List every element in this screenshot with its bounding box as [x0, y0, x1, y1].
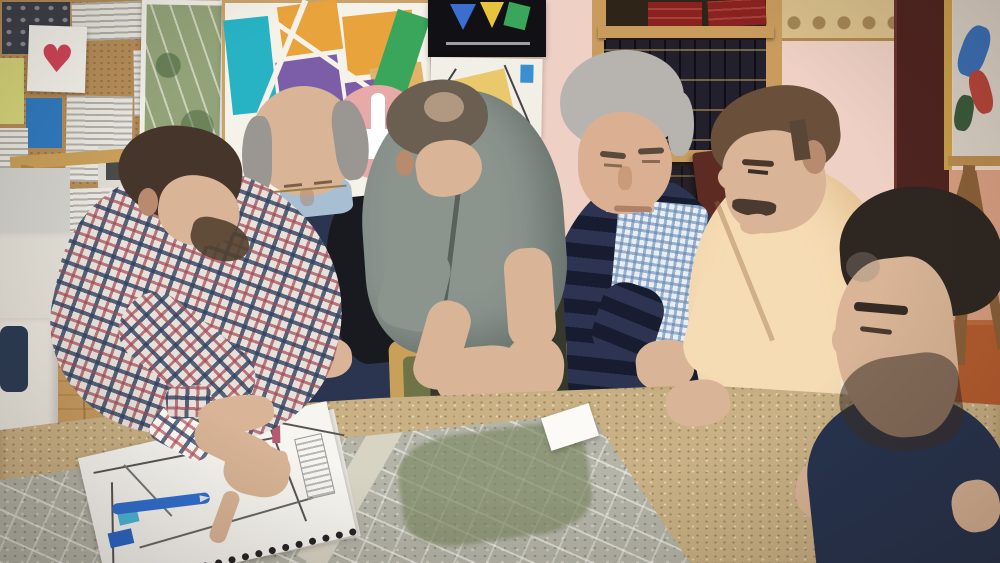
person-6-nose: [830, 325, 856, 358]
person-6-temple-gray: [846, 252, 880, 282]
person-6: [0, 0, 1000, 563]
photo-meeting-room: ♥: [0, 0, 1000, 563]
